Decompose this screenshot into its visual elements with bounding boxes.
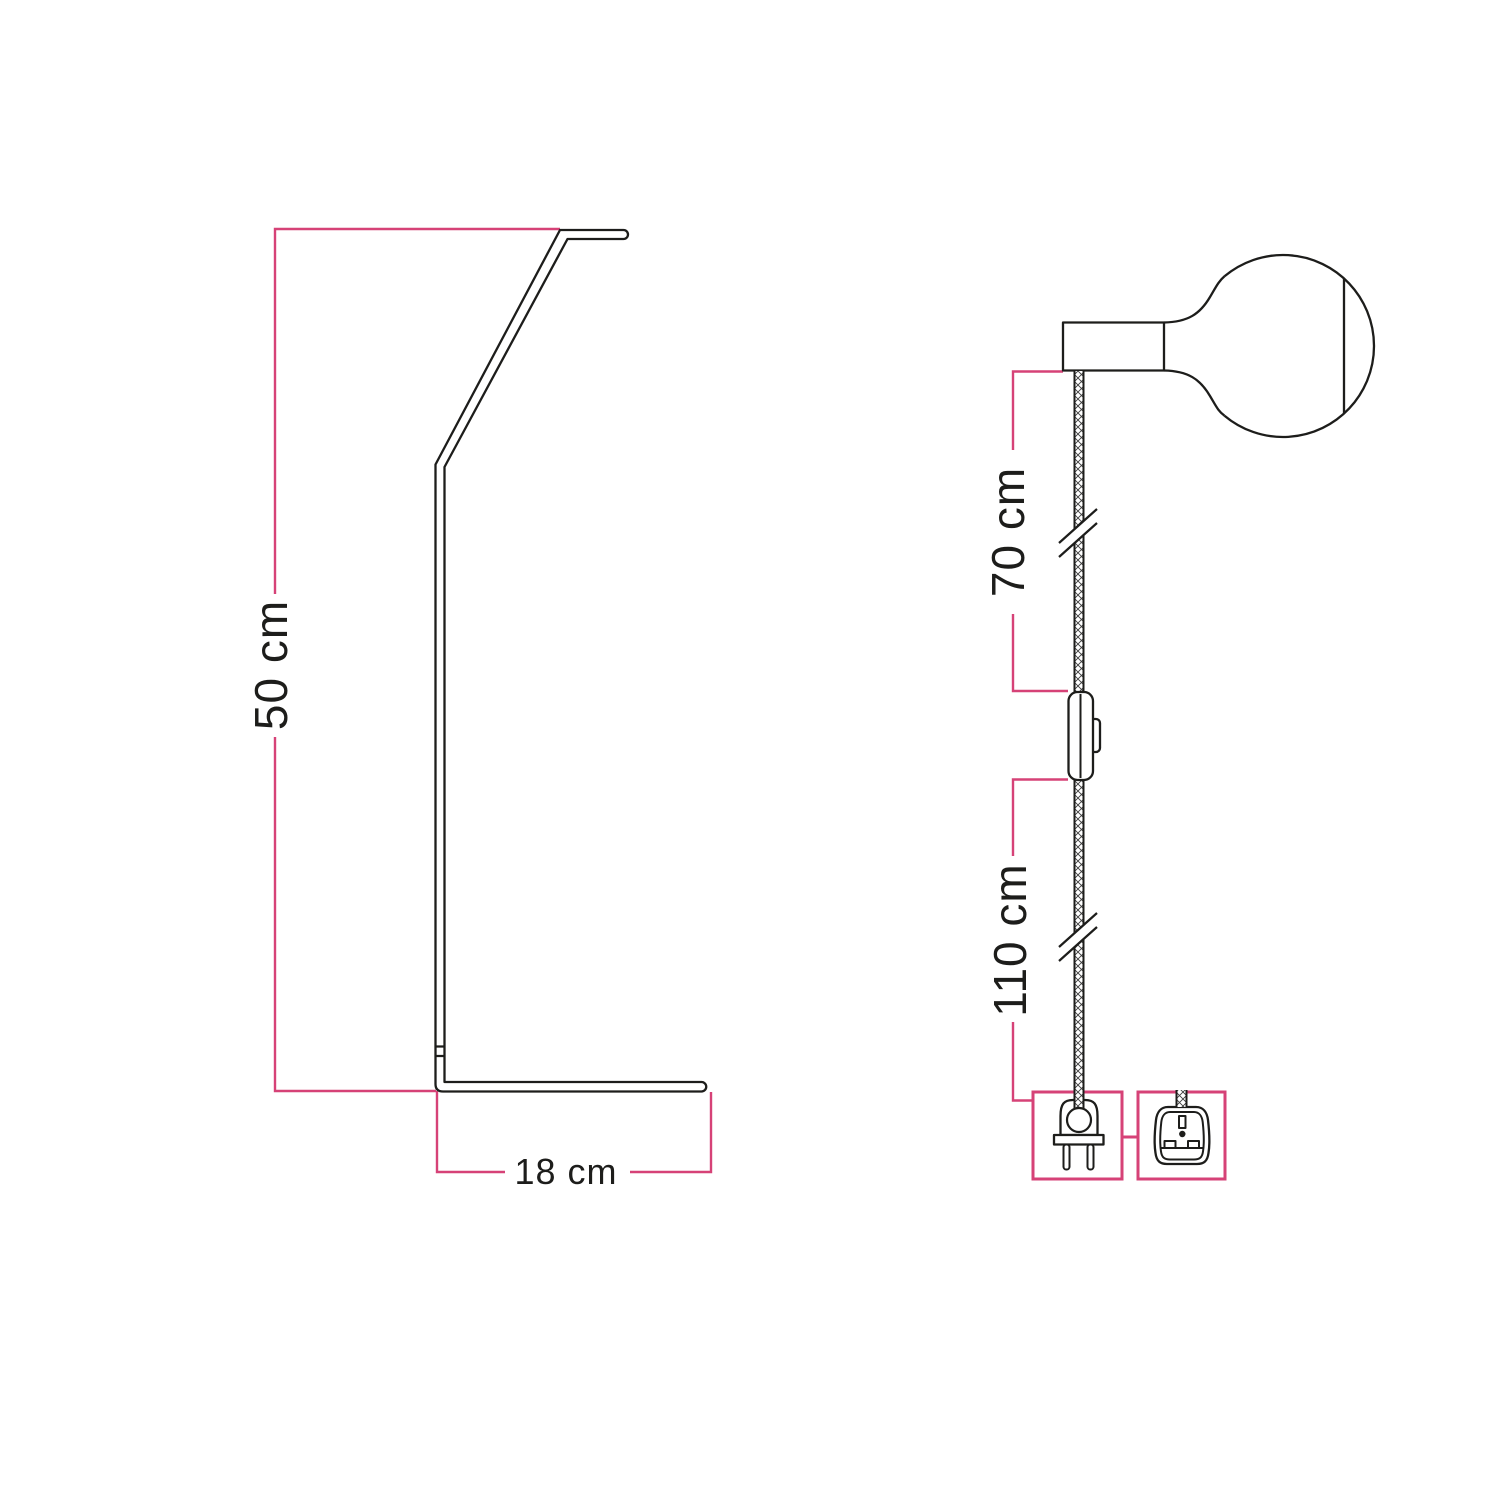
uk-three-pin-plug-icon <box>1155 1090 1210 1164</box>
eu-plug-base-plate <box>1054 1135 1104 1145</box>
stand-outline <box>436 230 707 1092</box>
product-dimension-diagram: 50 cm 18 cm 70 cm 110 cm <box>0 0 1500 1500</box>
eu-two-pin-plug-icon <box>1054 1085 1104 1170</box>
lower-cable-length-label: 110 cm <box>984 863 1036 1016</box>
inline-switch-icon <box>1069 692 1101 780</box>
pendant-lamp-figure <box>1054 255 1374 1170</box>
eu-plug-ring <box>1067 1108 1091 1132</box>
stand-height-label: 50 cm <box>245 600 297 730</box>
bulb-neck-bottom-curve <box>1164 371 1225 416</box>
lamp-holder-icon <box>1063 323 1164 371</box>
upper-cable-length-label: 70 cm <box>982 467 1034 597</box>
table-lamp-stand-profile <box>436 230 707 1092</box>
globe-bulb-icon <box>1164 255 1374 437</box>
bulb-globe-arc <box>1225 255 1375 437</box>
stand-base-label: 18 cm <box>514 1151 617 1192</box>
stub-hatch <box>1177 1090 1187 1107</box>
eu-plug-pin-right <box>1088 1145 1094 1170</box>
uk-plug-cable-stub <box>1177 1090 1187 1107</box>
bulb-neck-top-curve <box>1164 276 1225 322</box>
stand-joint-mark <box>436 1047 445 1057</box>
eu-plug-pin-left <box>1064 1145 1070 1170</box>
eu-plug-cable-stub <box>1075 1085 1084 1109</box>
dimension-diagram-svg: 50 cm 18 cm 70 cm 110 cm <box>0 0 1500 1500</box>
dimension-labels: 50 cm 18 cm 70 cm 110 cm <box>245 467 1036 1192</box>
stub-hatch <box>1075 1085 1084 1109</box>
uk-plug-center-dot <box>1179 1131 1185 1137</box>
stand-height-dimension-line <box>275 229 560 1091</box>
